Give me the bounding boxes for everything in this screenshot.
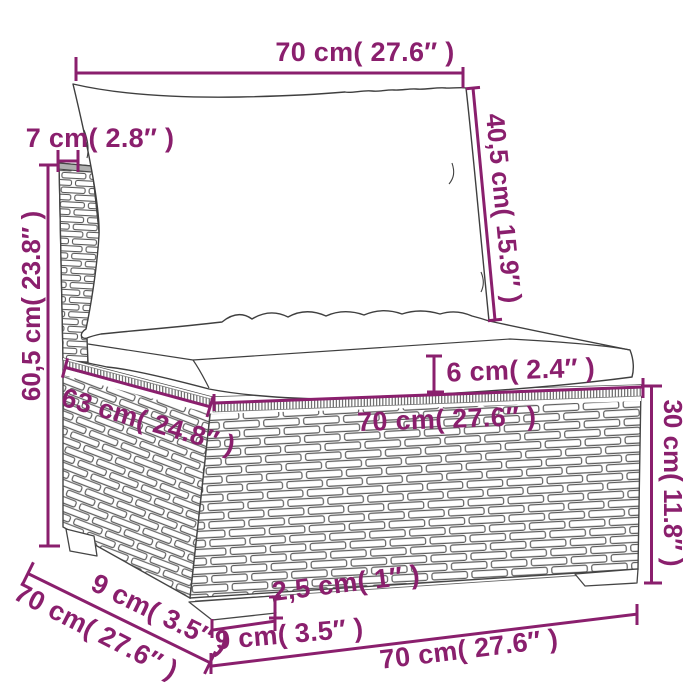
svg-text:7 cm( 2.8″ ): 7 cm( 2.8″ )	[26, 123, 175, 153]
svg-text:70 cm( 27.6″ ): 70 cm( 27.6″ )	[275, 37, 454, 67]
svg-text:70 cm( 27.6″ ): 70 cm( 27.6″ )	[357, 401, 537, 437]
svg-text:30 cm( 11.8″ ): 30 cm( 11.8″ )	[658, 399, 688, 566]
svg-text:60,5 cm( 23.8″ ): 60,5 cm( 23.8″ )	[16, 211, 46, 401]
svg-text:6 cm( 2.4″ ): 6 cm( 2.4″ )	[446, 352, 596, 387]
